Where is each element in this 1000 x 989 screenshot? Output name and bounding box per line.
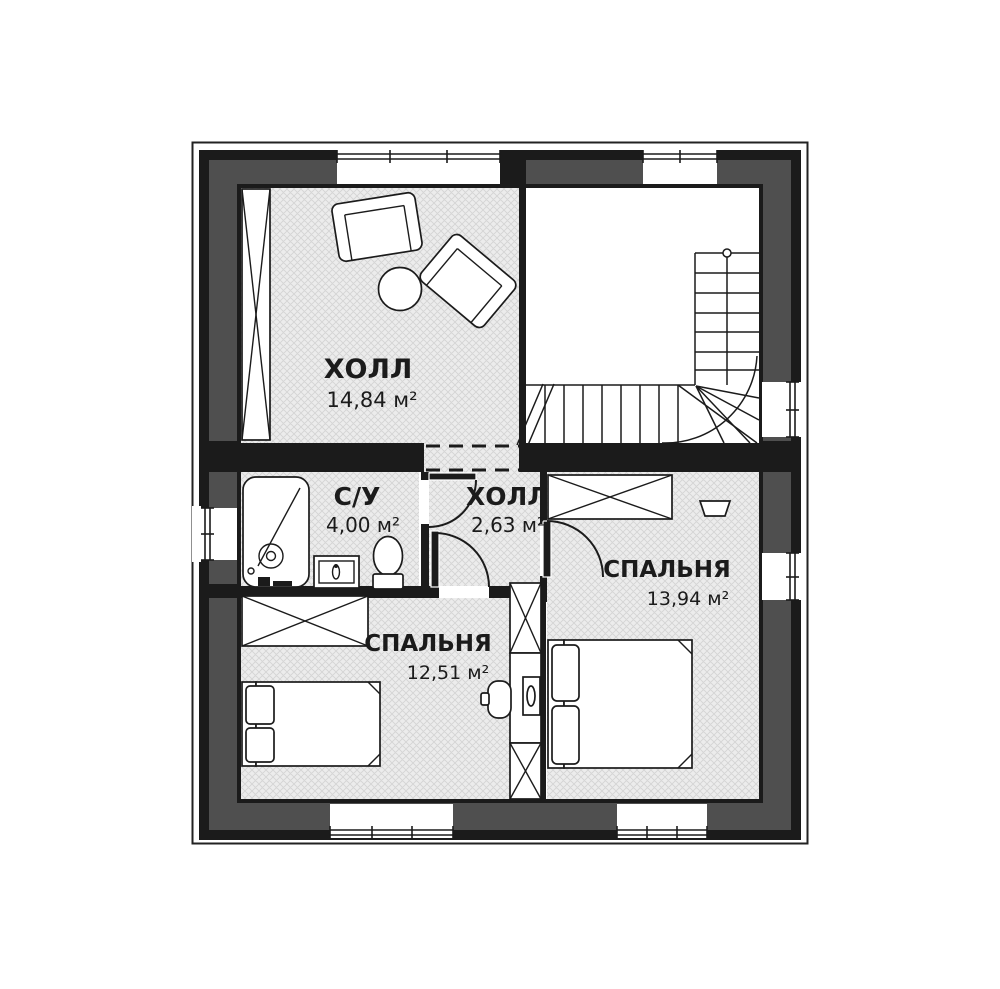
window-bottom-2 (617, 804, 707, 838)
shower (243, 477, 309, 587)
area-hall-upper: 14,84 м² (326, 388, 417, 412)
shower-hardware (258, 577, 270, 586)
wardrobe-tall (242, 189, 270, 440)
label-hall-upper: ХОЛЛ (324, 354, 413, 385)
shower-rail (273, 581, 292, 586)
tv-bracket (700, 501, 730, 516)
vanity-table (523, 677, 540, 715)
window-right-2 (762, 553, 801, 600)
floor-plan-page: ХОЛЛ 14,84 м² С/У 4,00 м² ХОЛЛ 2,63 м² С… (0, 0, 1000, 989)
stair-newel-post (723, 249, 731, 257)
wall-bathroom-stub (421, 472, 429, 480)
wall-hall-bottom-stub (429, 586, 439, 598)
bed-right (548, 640, 692, 768)
armchair-1 (331, 192, 423, 262)
wall-bathroom-right (421, 524, 429, 598)
window-top-1 (337, 148, 500, 184)
label-hall-small: ХОЛЛ (466, 482, 548, 511)
label-bathroom: С/У (334, 482, 381, 511)
label-bedroom-right: СПАЛЬНЯ (603, 557, 731, 583)
area-bedroom-right: 13,94 м² (647, 588, 729, 610)
wall-mid-right (519, 443, 759, 472)
wall-mid-left (241, 443, 424, 472)
coffee-table (379, 268, 422, 311)
area-bedroom-left: 12,51 м² (407, 662, 489, 684)
toilet (373, 537, 403, 590)
bed-left (242, 682, 380, 766)
area-bathroom: 4,00 м² (326, 513, 400, 537)
wardrobe-bedroom-right (548, 475, 672, 519)
label-bedroom-left: СПАЛЬНЯ (364, 631, 492, 657)
sink (314, 556, 359, 588)
area-hall-small: 2,63 м² (471, 513, 545, 537)
floor-plan-drawing: ХОЛЛ 14,84 м² С/У 4,00 м² ХОЛЛ 2,63 м² С… (0, 0, 1000, 989)
wall-hall-stairs (519, 184, 526, 444)
window-left (192, 506, 237, 562)
window-bottom-1 (330, 804, 453, 838)
wardrobe-bedroom-left (242, 596, 368, 646)
window-top-2 (643, 148, 717, 184)
window-right-1 (762, 382, 801, 437)
